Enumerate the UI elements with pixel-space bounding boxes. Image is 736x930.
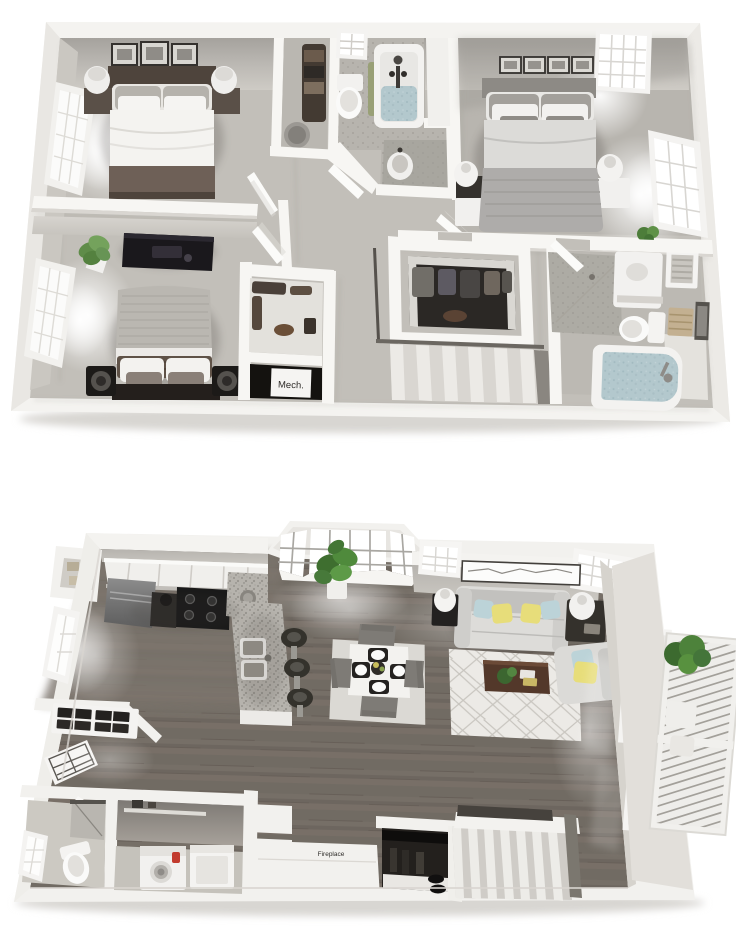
svg-text:Mech.: Mech.	[278, 380, 304, 392]
svg-text:Fireplace: Fireplace	[318, 851, 345, 858]
